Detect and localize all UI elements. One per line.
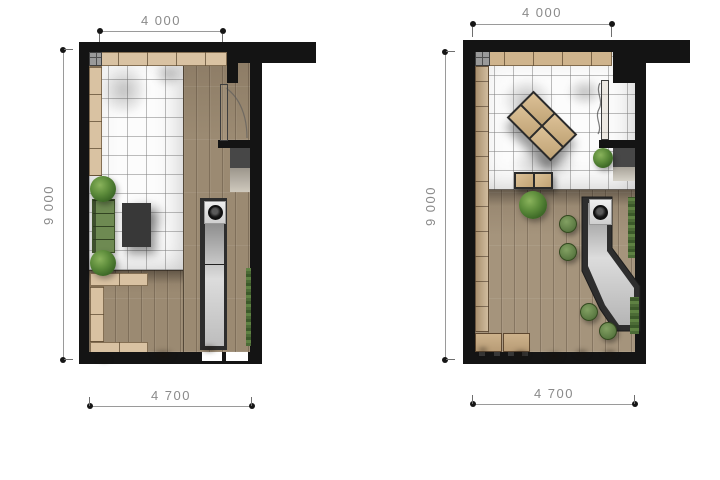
dimension-dot bbox=[470, 21, 476, 27]
dimension-tick bbox=[446, 51, 455, 52]
shadow-blob bbox=[508, 346, 534, 362]
bar-stool bbox=[559, 243, 577, 261]
dimension-label-bottom: 4 700 bbox=[512, 387, 596, 401]
green-wall-strip bbox=[630, 297, 639, 334]
entry-door-leaf bbox=[601, 80, 609, 140]
bench-panel bbox=[535, 174, 552, 187]
dimension-dot bbox=[470, 401, 476, 407]
corner-unit bbox=[475, 51, 490, 66]
dimension-line-bottom bbox=[473, 404, 635, 405]
dimension-tick bbox=[634, 395, 635, 404]
bar-stool bbox=[559, 215, 577, 233]
dimension-tick bbox=[446, 359, 455, 360]
plant bbox=[519, 191, 547, 219]
dimension-dot bbox=[632, 401, 638, 407]
dimension-dot bbox=[442, 49, 448, 55]
bench-panel bbox=[516, 174, 533, 187]
shadow-blob bbox=[474, 344, 492, 356]
dimension-label-top: 4 000 bbox=[500, 6, 584, 20]
cabinet-foot bbox=[494, 352, 500, 356]
wall-top-stub bbox=[613, 40, 690, 63]
dimension-label-left: 9 000 bbox=[424, 164, 438, 248]
shadow-blob bbox=[570, 346, 594, 360]
dimension-tick bbox=[472, 395, 473, 404]
wall-door-stub bbox=[613, 63, 646, 83]
shadow-blob bbox=[540, 348, 568, 364]
green-wall-strip bbox=[628, 197, 635, 258]
wall-counter-top bbox=[475, 51, 612, 66]
plant bbox=[593, 148, 613, 168]
cooktop-burner bbox=[593, 205, 608, 220]
wall-top bbox=[463, 40, 613, 52]
bar-stool bbox=[580, 303, 598, 321]
wall-partition-stub bbox=[599, 140, 635, 148]
floor-plan-right: 4 000 9 000 4 700 bbox=[0, 0, 720, 480]
bar-stool bbox=[599, 322, 617, 340]
dimension-dot bbox=[609, 21, 615, 27]
low-bench bbox=[514, 172, 553, 189]
entry-closet bbox=[613, 148, 635, 167]
floor-plans-canvas: 4 000 9 000 4 700 bbox=[0, 0, 720, 480]
dimension-tick bbox=[611, 27, 612, 37]
dimension-line-left bbox=[445, 52, 446, 360]
wall-bench-left bbox=[475, 66, 489, 332]
dimension-dot bbox=[442, 357, 448, 363]
shadow-blob bbox=[598, 346, 622, 360]
wall-left bbox=[463, 40, 475, 364]
entry-mat bbox=[613, 167, 635, 181]
dimension-line-top bbox=[473, 24, 612, 25]
dimension-tick bbox=[472, 27, 473, 37]
